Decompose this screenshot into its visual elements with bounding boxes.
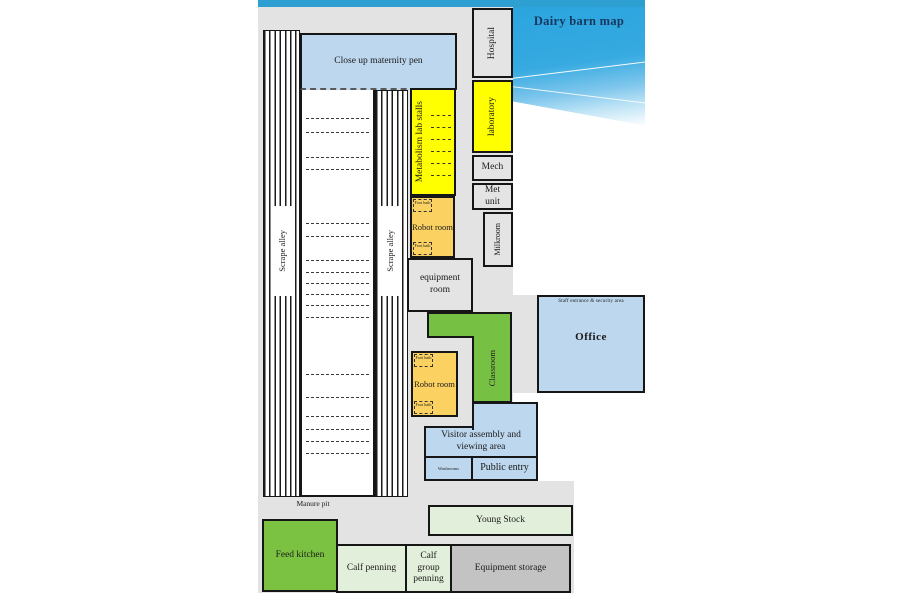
room-label: Young Stock	[476, 515, 525, 527]
stall-divider	[306, 223, 369, 224]
stall-rows-area	[300, 90, 375, 497]
room-label: equipment room	[415, 273, 465, 297]
stall-divider	[306, 305, 369, 306]
room-classroom-arm	[427, 312, 512, 338]
room-label: Scrape alley	[277, 230, 287, 272]
stall-divider	[431, 127, 451, 128]
room-feed-kitchen: Feed kitchen	[262, 519, 338, 592]
foot-bath-label: Foot bath	[414, 401, 433, 414]
stall-divider	[306, 374, 369, 375]
staff-entrance-label: Staff entrance & security area	[558, 297, 624, 305]
room-label: Met unit	[480, 185, 505, 209]
page-title: Dairy barn map	[513, 14, 645, 30]
stall-divider	[431, 115, 451, 116]
room-laboratory: laboratory	[472, 80, 513, 153]
room-scrape-alley-left: Scrape alley	[272, 206, 292, 296]
room-milkroom: Milkroom	[483, 212, 513, 267]
room-label: Scrape alley	[385, 230, 395, 272]
room-label: Mech	[482, 162, 504, 174]
room-robot-room-north: Foot bath Robot room Foot bath	[410, 196, 455, 258]
room-young-stock: Young Stock	[428, 505, 573, 536]
room-label: Milkroom	[493, 223, 503, 255]
room-label: Robot room	[412, 222, 453, 233]
room-office: Staff entrance & security area Office	[537, 295, 645, 393]
dairy-barn-map: Dairy barn map Scrape alley Scrape alley…	[0, 0, 900, 599]
visitor-area-upper	[472, 402, 538, 430]
room-label: Hospital	[487, 27, 499, 59]
stall-divider	[306, 416, 369, 417]
room-calf-penning: Calf penning	[336, 544, 407, 593]
room-mech: Mech	[472, 155, 513, 181]
stall-divider	[306, 272, 369, 273]
stall-divider	[306, 429, 369, 430]
stall-divider	[306, 236, 369, 237]
room-scrape-alley-right: Scrape alley	[380, 206, 400, 296]
manure-pit-label: Manure pit	[286, 499, 340, 508]
room-label: Calf penning	[347, 563, 396, 575]
stall-divider	[306, 453, 369, 454]
room-metabolism-lab-stalls: Metabolism lab stalls	[410, 88, 456, 196]
foot-bath-label: Foot bath	[414, 354, 433, 367]
stall-divider	[306, 118, 369, 119]
room-washrooms: Washrooms	[424, 456, 473, 481]
room-label: Feed kitchen	[276, 550, 325, 562]
room-label: Visitor assembly and viewing area	[430, 430, 532, 454]
stall-divider	[431, 151, 451, 152]
stall-divider	[306, 397, 369, 398]
room-classroom: Classroom	[472, 336, 512, 403]
stall-divider	[306, 294, 369, 295]
stall-divider	[306, 169, 369, 170]
room-label: Public entry	[480, 462, 529, 475]
stall-divider	[306, 260, 369, 261]
room-label: laboratory	[487, 97, 499, 136]
room-label: Office	[575, 331, 607, 345]
stall-divider	[306, 317, 369, 318]
foot-bath-label: Foot bath	[413, 242, 432, 255]
room-label: Metabolism lab stalls	[415, 101, 427, 182]
room-equipment-storage: Equipment storage	[450, 544, 571, 593]
room-calf-group-penning: Calf group penning	[405, 544, 452, 593]
room-label: Classroom	[487, 350, 498, 386]
room-label: Equipment storage	[475, 563, 547, 575]
stall-divider	[431, 163, 451, 164]
stall-divider	[431, 139, 451, 140]
stall-divider	[306, 157, 369, 158]
room-public-entry: Public entry	[471, 456, 538, 481]
room-label: Close up maternity pen	[334, 56, 422, 68]
room-hospital: Hospital	[472, 8, 513, 78]
room-visitor-assembly: Visitor assembly and viewing area	[424, 426, 538, 458]
foot-bath-label: Foot bath	[413, 199, 432, 212]
header-bar	[258, 0, 645, 7]
stall-divider	[306, 283, 369, 284]
room-equipment-room: equipment room	[407, 258, 473, 312]
room-met-unit: Met unit	[472, 183, 513, 210]
office-connector-background	[513, 295, 538, 393]
stall-divider	[306, 441, 369, 442]
stall-divider	[306, 132, 369, 133]
room-label: Robot room	[414, 379, 455, 390]
room-close-up-maternity-pen: Close up maternity pen	[300, 33, 457, 90]
room-label: Calf group penning	[409, 551, 448, 587]
room-label: Washrooms	[438, 466, 459, 472]
stall-divider	[431, 175, 451, 176]
room-robot-room-south: Foot bath Robot room Foot bath	[411, 351, 458, 417]
title-panel: Dairy barn map	[513, 7, 645, 157]
